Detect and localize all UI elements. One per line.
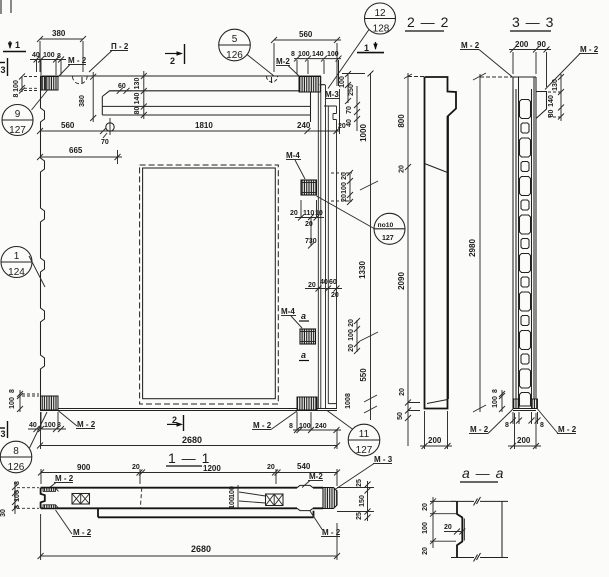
svg-text:100: 100: [44, 422, 56, 429]
svg-text:20: 20: [348, 344, 355, 352]
svg-text:100: 100: [229, 497, 236, 509]
svg-text:100: 100: [13, 80, 20, 92]
svg-text:100: 100: [345, 397, 352, 409]
svg-text:240: 240: [315, 423, 327, 430]
svg-text:800: 800: [397, 114, 406, 128]
svg-text:127: 127: [382, 235, 394, 242]
svg-text:1000: 1000: [359, 124, 368, 142]
svg-text:100: 100: [327, 51, 339, 58]
svg-text:12: 12: [374, 8, 386, 19]
svg-text:a: a: [301, 311, 306, 321]
svg-text:30: 30: [0, 509, 7, 517]
svg-text:1: 1: [14, 251, 20, 262]
svg-text:20: 20: [348, 319, 355, 327]
svg-text:70: 70: [101, 139, 109, 146]
svg-text:20: 20: [444, 524, 452, 531]
svg-text:М - 2: М - 2: [470, 425, 489, 434]
svg-text:20: 20: [338, 123, 346, 130]
svg-text:М - 2: М - 2: [73, 528, 92, 537]
svg-text:П - 2: П - 2: [111, 42, 129, 51]
svg-text:20: 20: [308, 282, 316, 289]
svg-text:100: 100: [492, 396, 499, 408]
svg-text:20: 20: [399, 388, 406, 396]
svg-text:a: a: [301, 350, 306, 360]
svg-text:8: 8: [9, 389, 16, 393]
svg-text:140: 140: [312, 51, 324, 58]
svg-text:20: 20: [422, 503, 429, 511]
svg-text:128: 128: [373, 24, 390, 35]
svg-text:20: 20: [290, 210, 298, 217]
svg-text:8: 8: [289, 423, 293, 430]
svg-text:М-4: М-4: [286, 151, 300, 160]
svg-text:250: 250: [348, 84, 355, 96]
svg-text:1: 1: [15, 40, 20, 50]
svg-text:200: 200: [428, 436, 442, 445]
svg-text:2680: 2680: [191, 544, 211, 554]
svg-text:124: 124: [8, 267, 25, 278]
svg-text:380: 380: [52, 29, 66, 38]
svg-text:8: 8: [345, 393, 352, 397]
svg-text:3: 3: [1, 65, 6, 75]
svg-text:900: 900: [77, 463, 91, 472]
svg-text:550: 550: [359, 368, 368, 382]
svg-text:9: 9: [15, 109, 21, 120]
svg-text:60: 60: [329, 279, 337, 286]
svg-text:11: 11: [359, 429, 370, 440]
svg-text:8: 8: [13, 93, 20, 97]
svg-text:2090: 2090: [397, 272, 406, 290]
svg-text:20: 20: [305, 221, 313, 228]
svg-text:2 — 2: 2 — 2: [407, 14, 449, 30]
svg-text:40: 40: [29, 422, 37, 429]
svg-text:200: 200: [517, 436, 531, 445]
svg-text:М-2: М-2: [276, 57, 290, 66]
svg-text:127: 127: [356, 445, 373, 456]
svg-text:100: 100: [348, 329, 355, 341]
svg-text:127: 127: [9, 125, 26, 136]
svg-text:3: 3: [1, 429, 6, 439]
svg-text:40: 40: [346, 119, 353, 127]
svg-text:140: 140: [548, 95, 555, 107]
svg-text:665: 665: [69, 146, 83, 155]
svg-text:М - 2: М - 2: [322, 528, 341, 537]
svg-text:3 — 3: 3 — 3: [512, 14, 554, 30]
svg-text:М - 2: М - 2: [580, 45, 599, 54]
svg-text:140: 140: [134, 93, 141, 105]
svg-text:М - 2: М - 2: [253, 421, 272, 430]
svg-text:560: 560: [61, 121, 75, 130]
svg-text:200: 200: [515, 40, 529, 49]
svg-text:20: 20: [132, 464, 140, 471]
svg-text:a — a: a — a: [462, 465, 504, 481]
svg-text:25: 25: [356, 479, 363, 487]
svg-text:1: 1: [364, 43, 369, 53]
svg-text:8: 8: [492, 389, 499, 393]
svg-text:730: 730: [305, 238, 317, 245]
svg-text:126: 126: [8, 462, 25, 473]
svg-text:2980: 2980: [468, 239, 477, 257]
svg-text:80: 80: [548, 110, 555, 118]
svg-text:130: 130: [134, 78, 141, 90]
svg-text:100: 100: [422, 522, 429, 534]
svg-text:20: 20: [331, 292, 339, 299]
svg-text:8: 8: [291, 51, 295, 58]
svg-text:20: 20: [267, 464, 275, 471]
svg-text:80: 80: [134, 107, 141, 115]
svg-text:2: 2: [170, 56, 175, 66]
svg-text:380: 380: [79, 95, 86, 107]
svg-text:50: 50: [397, 412, 404, 420]
svg-text:М - 2: М - 2: [68, 56, 87, 65]
svg-text:2: 2: [172, 415, 177, 425]
svg-text:8: 8: [540, 422, 544, 429]
svg-text:5: 5: [232, 34, 238, 45]
svg-text:70: 70: [346, 106, 353, 114]
svg-text:150: 150: [359, 495, 366, 507]
svg-text:100: 100: [9, 397, 16, 409]
svg-text:100: 100: [229, 486, 236, 498]
svg-text:по10: по10: [378, 222, 394, 229]
svg-text:2680: 2680: [182, 435, 202, 445]
svg-text:М - 2: М - 2: [558, 425, 577, 434]
svg-text:М - 3: М - 3: [374, 455, 393, 464]
svg-text:1200: 1200: [203, 464, 221, 473]
svg-text:126: 126: [226, 50, 243, 61]
svg-text:1810: 1810: [195, 121, 213, 130]
svg-text:130: 130: [552, 79, 559, 91]
svg-text:М-3: М-3: [325, 90, 339, 99]
svg-text:1330: 1330: [358, 261, 367, 279]
svg-text:8: 8: [13, 446, 19, 457]
svg-text:8: 8: [505, 422, 509, 429]
svg-text:М-4: М-4: [281, 307, 295, 316]
svg-text:100: 100: [298, 51, 310, 58]
svg-text:40: 40: [320, 279, 328, 286]
svg-text:М - 2: М - 2: [461, 41, 480, 50]
svg-text:20: 20: [422, 547, 429, 555]
svg-text:540: 540: [297, 462, 311, 471]
svg-text:240: 240: [297, 121, 311, 130]
svg-text:100: 100: [43, 52, 55, 59]
svg-text:М-2: М-2: [309, 472, 323, 481]
svg-text:М - 2: М - 2: [55, 474, 74, 483]
svg-text:М - 2: М - 2: [77, 420, 96, 429]
svg-text:25: 25: [356, 512, 363, 520]
svg-text:20: 20: [399, 165, 406, 173]
svg-text:560: 560: [299, 30, 313, 39]
svg-text:100: 100: [339, 76, 346, 88]
